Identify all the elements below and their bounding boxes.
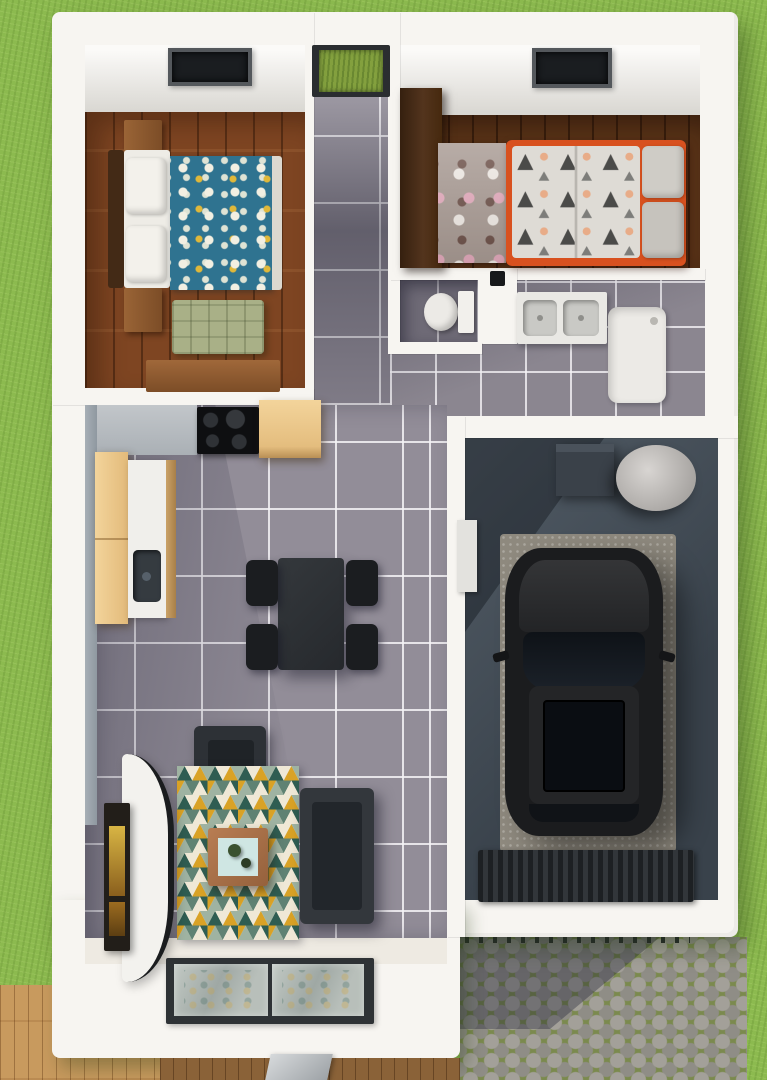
- bed-frame-edge: [272, 156, 282, 290]
- dining-chair: [346, 560, 378, 606]
- teal-floral-duvet: [170, 156, 272, 290]
- car-windshield: [523, 632, 645, 690]
- toilet-tank: [458, 291, 474, 333]
- tv-screen-content: [109, 826, 125, 896]
- coffee-table: [208, 828, 268, 886]
- kitchen-north-counter: [97, 405, 197, 455]
- kids-duvet: [512, 146, 640, 258]
- drain-icon: [537, 315, 543, 321]
- driveway-shadow: [460, 937, 660, 1029]
- tv-screen-content: [109, 902, 125, 936]
- kids-duvet-pattern: [512, 146, 640, 258]
- dining-chair: [246, 624, 278, 670]
- dining-chair: [246, 560, 278, 606]
- wall-tv: [104, 803, 130, 951]
- shower-tray: [608, 307, 666, 403]
- cooktop: [197, 407, 259, 454]
- window-pane: [272, 964, 364, 1016]
- sofa-seat: [312, 802, 362, 910]
- corner-cabinet: [259, 400, 321, 458]
- garage-side-door: [457, 520, 477, 592]
- wall-wc-south: [388, 342, 482, 354]
- wardrobe: [400, 88, 442, 268]
- plant-pot: [241, 858, 251, 868]
- plant-pot: [228, 844, 241, 857]
- dining-table: [278, 558, 344, 670]
- entry-door-glass: [319, 50, 383, 92]
- master-skylight: [168, 48, 252, 86]
- window-reflection: [282, 970, 354, 1010]
- nightstand-bottom: [124, 288, 162, 332]
- green-bench: [172, 300, 264, 354]
- window-reflection: [184, 970, 258, 1010]
- counter-side-panel: [166, 460, 176, 618]
- drain-icon: [650, 317, 658, 325]
- car-sunroof: [543, 700, 625, 792]
- wall-vent: [490, 271, 505, 286]
- window-pane: [174, 964, 268, 1016]
- car-hood: [519, 560, 649, 632]
- sink-basin: [523, 300, 557, 336]
- sofa: [300, 788, 374, 924]
- kids-skylight: [532, 48, 612, 88]
- cobblestone-driveway: [460, 937, 747, 1080]
- water-tank-cylinder: [616, 445, 696, 511]
- garage-door-track: [465, 937, 690, 943]
- hallway-shadow: [312, 88, 390, 405]
- black-suv: [505, 548, 663, 836]
- bed-pillow: [126, 158, 166, 214]
- car-rear-window: [529, 804, 639, 822]
- bed-pillow: [126, 226, 166, 282]
- garage-storage-box: [556, 444, 614, 496]
- dining-chair: [346, 624, 378, 670]
- kids-pillow: [642, 146, 684, 198]
- kids-pillow: [642, 202, 684, 258]
- kids-rug: [438, 143, 506, 263]
- sink-basin: [563, 300, 599, 336]
- bed-headboard: [108, 150, 124, 288]
- exterior-step-unit: [265, 1054, 333, 1080]
- tall-cabinet: [95, 452, 128, 624]
- wall-garage-north: [447, 416, 738, 438]
- wooden-desk: [146, 360, 280, 392]
- drain-icon: [578, 315, 584, 321]
- coffee-table-top: [218, 838, 258, 876]
- floor-plan-render: [0, 0, 767, 1080]
- garage-ribbed-mat: [478, 850, 694, 902]
- wall-kids-south: [390, 268, 705, 280]
- wall-living-garage: [447, 416, 465, 937]
- kitchen-sink: [133, 550, 161, 602]
- toilet-bowl: [424, 293, 458, 331]
